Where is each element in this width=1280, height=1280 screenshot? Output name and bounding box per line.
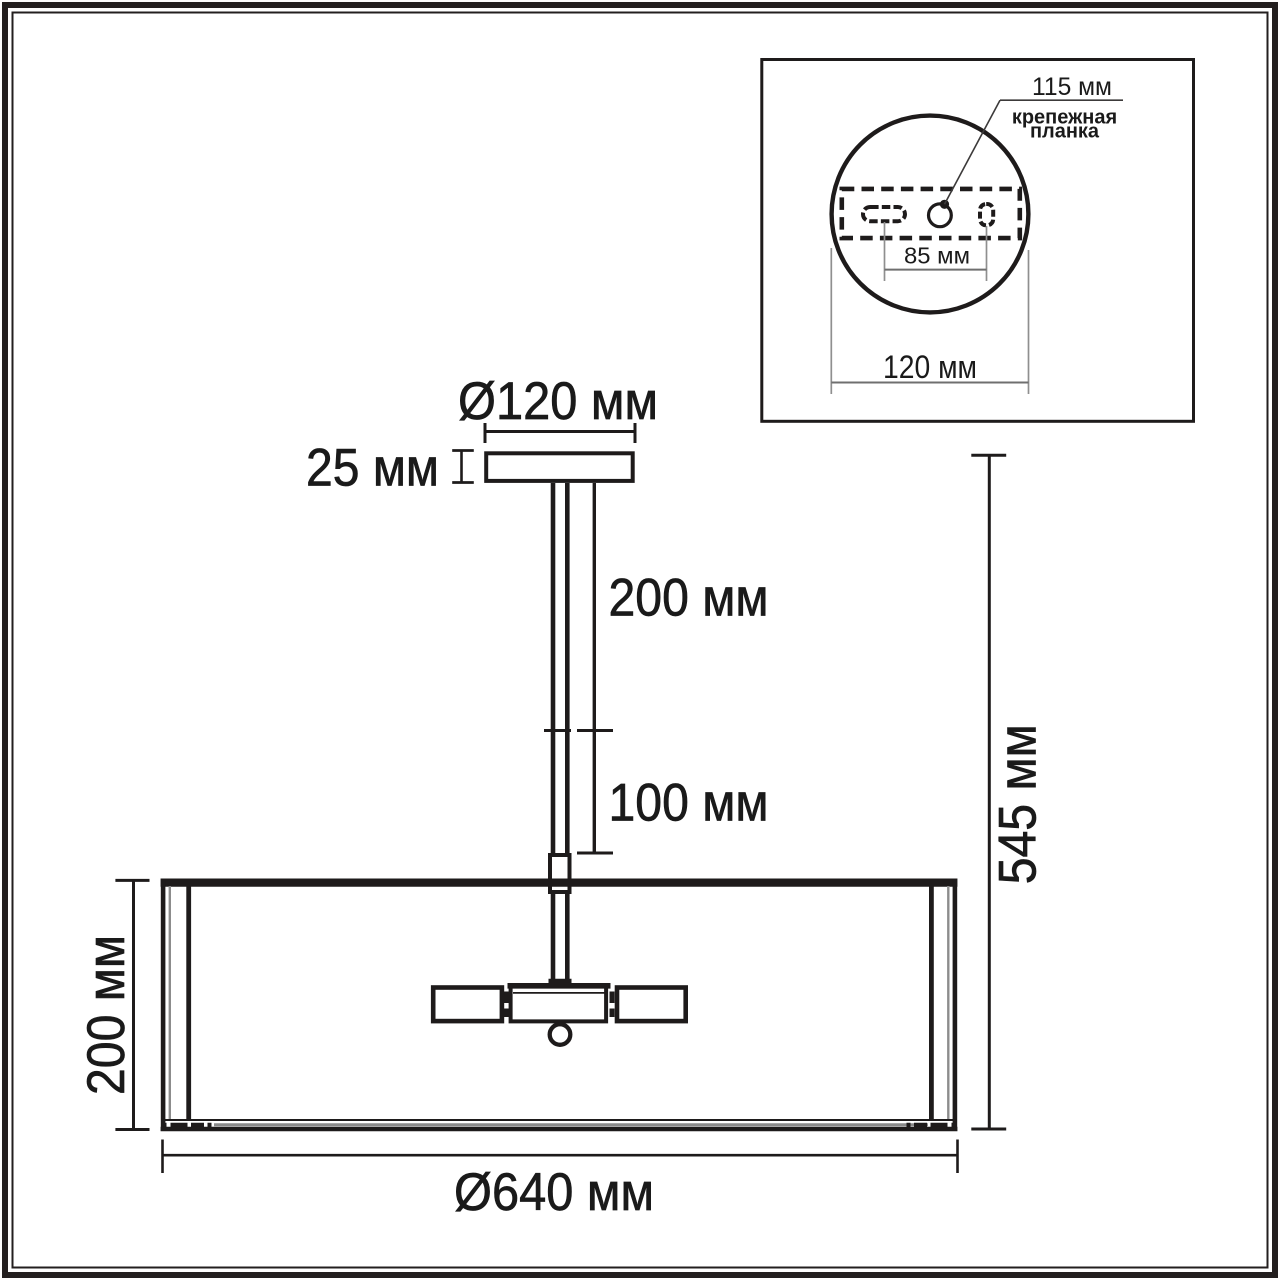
svg-text:планка: планка — [1030, 121, 1100, 143]
svg-text:25 мм: 25 мм — [306, 439, 439, 498]
svg-text:100 мм: 100 мм — [609, 774, 769, 833]
svg-text:200 мм: 200 мм — [609, 569, 769, 628]
svg-text:Ø640 мм: Ø640 мм — [454, 1163, 654, 1222]
svg-text:545 мм: 545 мм — [989, 724, 1048, 884]
svg-text:120 мм: 120 мм — [883, 349, 977, 385]
svg-text:200 мм: 200 мм — [77, 935, 136, 1095]
svg-text:85 мм: 85 мм — [904, 243, 970, 269]
svg-text:115 мм: 115 мм — [1032, 73, 1112, 101]
svg-text:Ø120 мм: Ø120 мм — [458, 372, 658, 431]
